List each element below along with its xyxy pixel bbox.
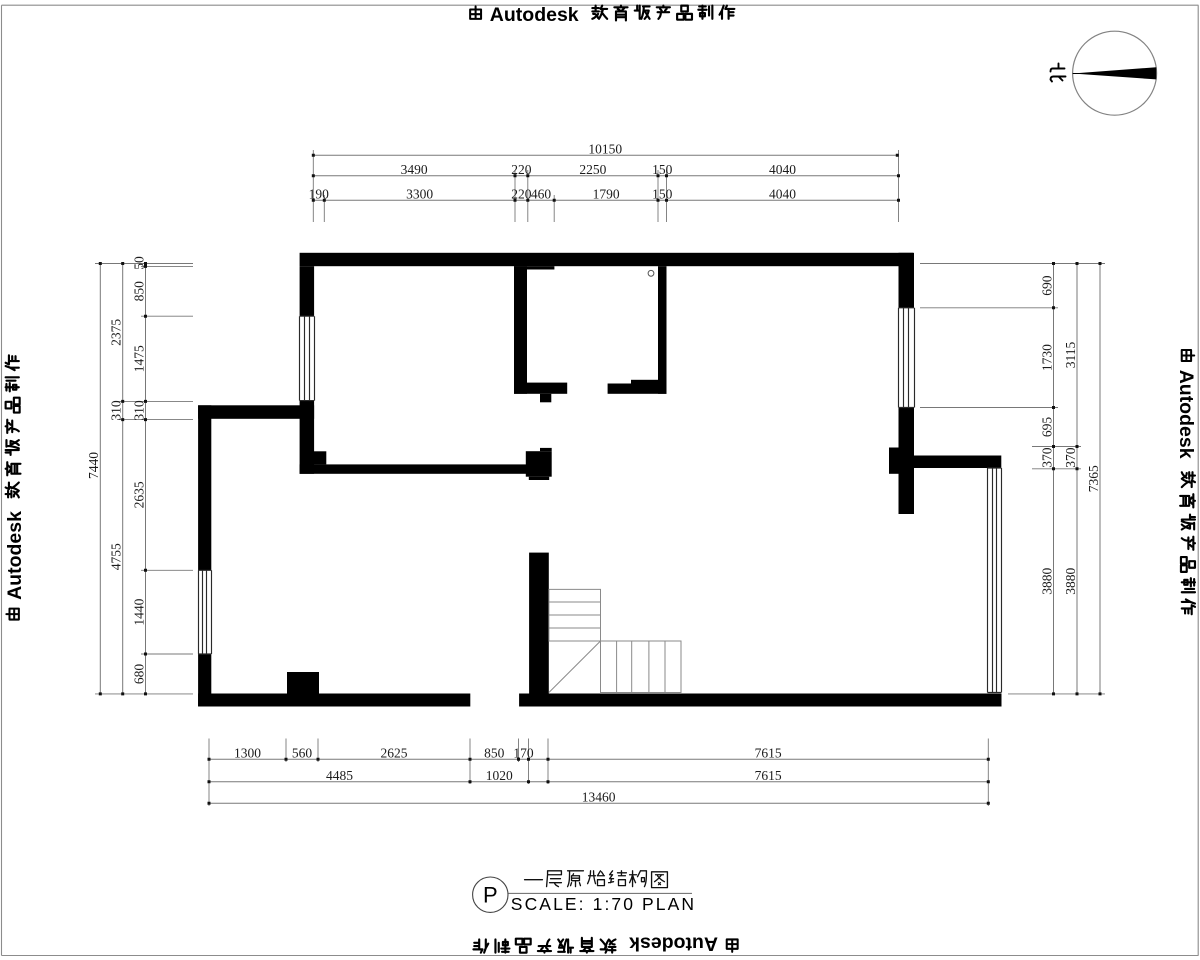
svg-text:150: 150: [652, 162, 673, 177]
svg-text:3880: 3880: [1039, 568, 1054, 595]
svg-text:370: 370: [1063, 447, 1078, 468]
svg-text:4040: 4040: [769, 162, 796, 177]
svg-text:2250: 2250: [579, 162, 606, 177]
svg-text:150: 150: [652, 187, 673, 202]
svg-text:4040: 4040: [769, 187, 796, 202]
svg-text:850: 850: [484, 746, 505, 761]
svg-text:680: 680: [131, 664, 146, 685]
svg-text:4755: 4755: [109, 543, 124, 570]
svg-text:Autodesk: Autodesk: [490, 4, 579, 26]
svg-text:7615: 7615: [755, 768, 782, 783]
svg-text:7615: 7615: [755, 746, 782, 761]
svg-text:560: 560: [292, 746, 313, 761]
svg-text:7365: 7365: [1086, 465, 1101, 492]
svg-text:SCALE: 1:70 PLAN: SCALE: 1:70 PLAN: [511, 894, 696, 914]
svg-text:220: 220: [511, 162, 532, 177]
svg-text:Autodesk: Autodesk: [629, 933, 718, 955]
svg-text:1475: 1475: [131, 345, 146, 372]
svg-text:1440: 1440: [131, 598, 146, 625]
svg-text:190: 190: [309, 187, 330, 202]
svg-text:460: 460: [531, 187, 552, 202]
svg-text:3880: 3880: [1063, 568, 1078, 595]
svg-text:1300: 1300: [234, 746, 261, 761]
svg-text:850: 850: [131, 281, 146, 302]
svg-text:1790: 1790: [593, 187, 620, 202]
svg-text:3300: 3300: [406, 187, 433, 202]
svg-text:2635: 2635: [131, 481, 146, 508]
svg-text:690: 690: [1039, 275, 1054, 296]
svg-text:P: P: [483, 883, 498, 908]
svg-text:370: 370: [1039, 447, 1054, 468]
svg-text:13460: 13460: [582, 790, 616, 805]
svg-text:4485: 4485: [326, 768, 353, 783]
svg-text:220: 220: [511, 187, 532, 202]
svg-text:50: 50: [131, 256, 146, 270]
svg-text:695: 695: [1039, 417, 1054, 438]
svg-text:Autodesk: Autodesk: [1175, 370, 1197, 459]
svg-text:2375: 2375: [109, 319, 124, 346]
svg-text:7440: 7440: [86, 452, 101, 479]
svg-text:170: 170: [513, 746, 534, 761]
svg-text:3490: 3490: [401, 162, 428, 177]
svg-text:310: 310: [131, 400, 146, 421]
svg-text:10150: 10150: [588, 142, 622, 157]
svg-text:1020: 1020: [486, 768, 513, 783]
svg-text:Autodesk: Autodesk: [4, 511, 26, 600]
svg-text:2625: 2625: [381, 746, 408, 761]
svg-text:310: 310: [109, 400, 124, 421]
svg-text:1730: 1730: [1039, 344, 1054, 371]
svg-text:3115: 3115: [1063, 342, 1078, 369]
